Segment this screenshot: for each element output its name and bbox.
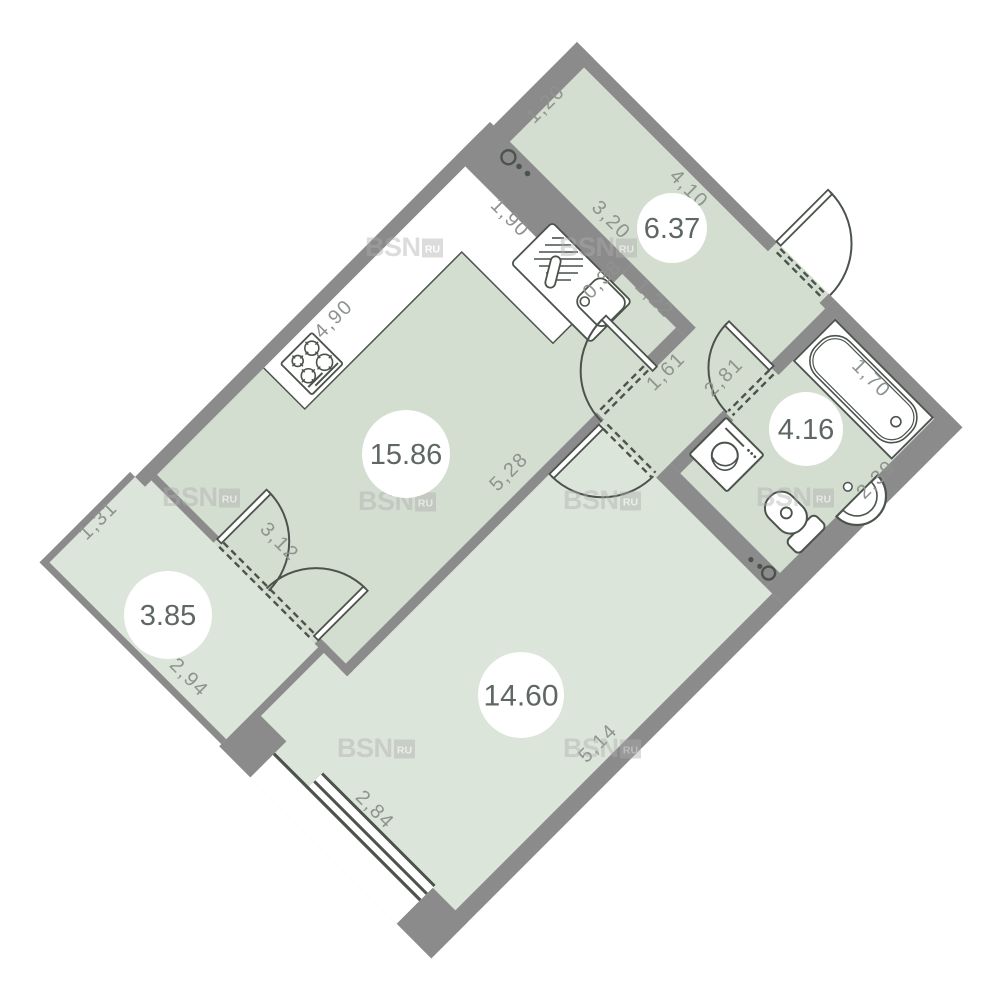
svg-text:6.37: 6.37 (644, 213, 700, 245)
svg-text:RU: RU (418, 498, 433, 510)
svg-text:RU: RU (222, 494, 237, 506)
svg-text:14.60: 14.60 (483, 680, 558, 713)
svg-text:RU: RU (816, 494, 831, 506)
svg-text:RU: RU (623, 745, 638, 757)
svg-text:BSN: BSN (365, 232, 421, 262)
svg-text:BSN: BSN (162, 482, 218, 512)
svg-text:BSN: BSN (559, 232, 615, 262)
svg-text:RU: RU (397, 745, 412, 757)
svg-text:RU: RU (619, 244, 634, 256)
svg-text:RU: RU (623, 497, 638, 509)
svg-text:BSN: BSN (337, 733, 393, 763)
svg-text:BSN: BSN (563, 485, 619, 515)
svg-text:15.86: 15.86 (370, 439, 443, 471)
svg-text:RU: RU (425, 244, 440, 256)
svg-text:BSN: BSN (563, 733, 619, 763)
svg-text:BSN: BSN (756, 482, 812, 512)
svg-text:3.85: 3.85 (140, 600, 196, 632)
svg-text:4.16: 4.16 (778, 414, 834, 446)
